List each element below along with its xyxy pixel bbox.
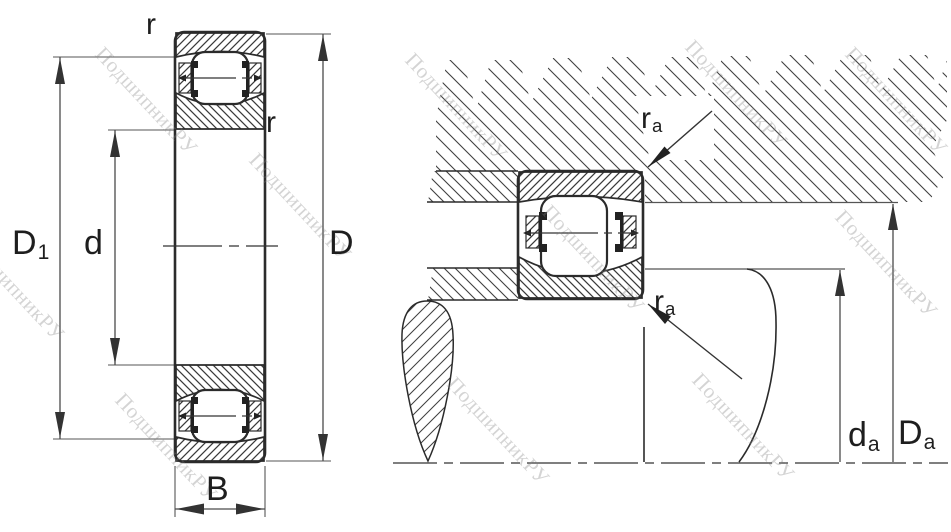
label-D1: D1: [12, 226, 49, 260]
label-ra-top: ra: [641, 104, 662, 134]
label-da: da: [848, 418, 880, 452]
label-r-top: r: [146, 10, 156, 40]
label-D: D: [329, 226, 354, 260]
dimension-arrows-right-view: [835, 204, 898, 296]
label-Da: Da: [898, 416, 935, 450]
shaft-shoulder-teardrop: [402, 301, 453, 461]
left-view: [53, 32, 331, 517]
label-d: d: [84, 226, 103, 260]
label-B: B: [206, 472, 229, 506]
label-ra-bottom: ra: [654, 287, 675, 317]
label-r-side: r: [266, 108, 276, 138]
shaft-shoulder-profile: [739, 269, 776, 462]
right-view: [393, 55, 948, 463]
shaft-shoulder-band: [428, 268, 518, 300]
bearing-dimension-drawing: ПодшипникРУ ПодшипникРУ ПодшипникРУ Подш…: [0, 0, 951, 532]
barrel-roller-mounted: [541, 196, 607, 276]
technical-drawing-svg: [0, 0, 951, 532]
housing-shoulder-band: [428, 171, 518, 202]
